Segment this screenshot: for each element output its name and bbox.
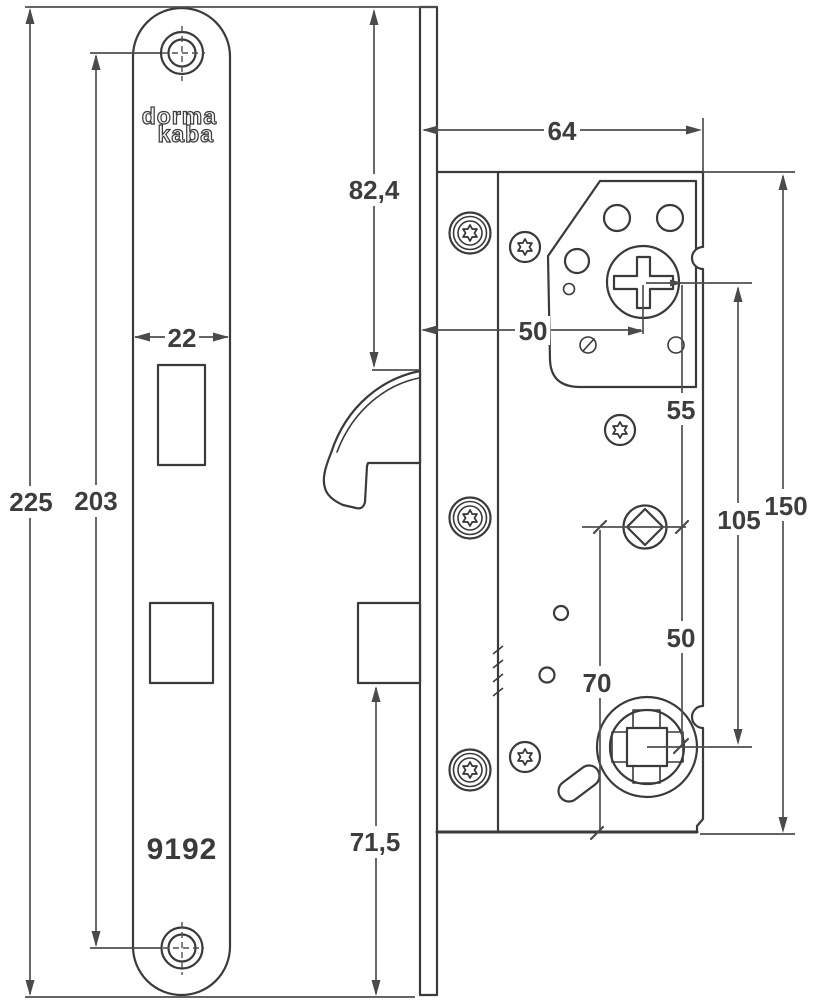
technical-drawing-page: dorma kaba 9192	[0, 0, 815, 1000]
dim-label-screw-spacing: 203	[74, 486, 117, 516]
slotted-cam-hole	[554, 761, 603, 805]
lock-drawing-canvas: dorma kaba 9192	[0, 0, 815, 1000]
dim-label-cylinder-to-spindle: 55	[667, 395, 696, 425]
case-hole-small	[554, 606, 568, 620]
deadbolt-side	[358, 603, 420, 683]
torx-screw-icon	[510, 232, 540, 262]
dim-label-spindle-to-bottom: 70	[583, 668, 612, 698]
dim-label-spindle-to-follower: 50	[667, 623, 696, 653]
torx-screw-icon	[450, 498, 491, 539]
brand-logo-line2: kaba	[158, 121, 214, 147]
dim-label-deadbolt-to-bottom: 71,5	[350, 827, 401, 857]
torx-screw-icon	[605, 415, 635, 445]
torx-screw-icon	[510, 742, 540, 772]
dim-label-overall-height: 225	[9, 487, 52, 517]
dim-label-backset: 50	[519, 316, 548, 346]
dim-label-cylinder-to-follower: 105	[717, 505, 760, 535]
dim-label-case-height: 150	[764, 491, 807, 521]
torx-screw-icon	[450, 213, 491, 254]
model-number: 9192	[147, 833, 218, 866]
lock-case-view	[437, 172, 710, 832]
dim-label-case-depth: 64	[548, 116, 577, 146]
dim-label-faceplate-width: 22	[168, 323, 197, 353]
case-hole-small	[540, 668, 555, 683]
faceplate-front-view: dorma kaba 9192	[133, 8, 230, 995]
dim-label-top-to-latch: 82,4	[349, 175, 400, 205]
forend-plate	[420, 7, 437, 995]
torx-screw-icon	[450, 750, 491, 791]
latch-bolt	[324, 371, 420, 508]
